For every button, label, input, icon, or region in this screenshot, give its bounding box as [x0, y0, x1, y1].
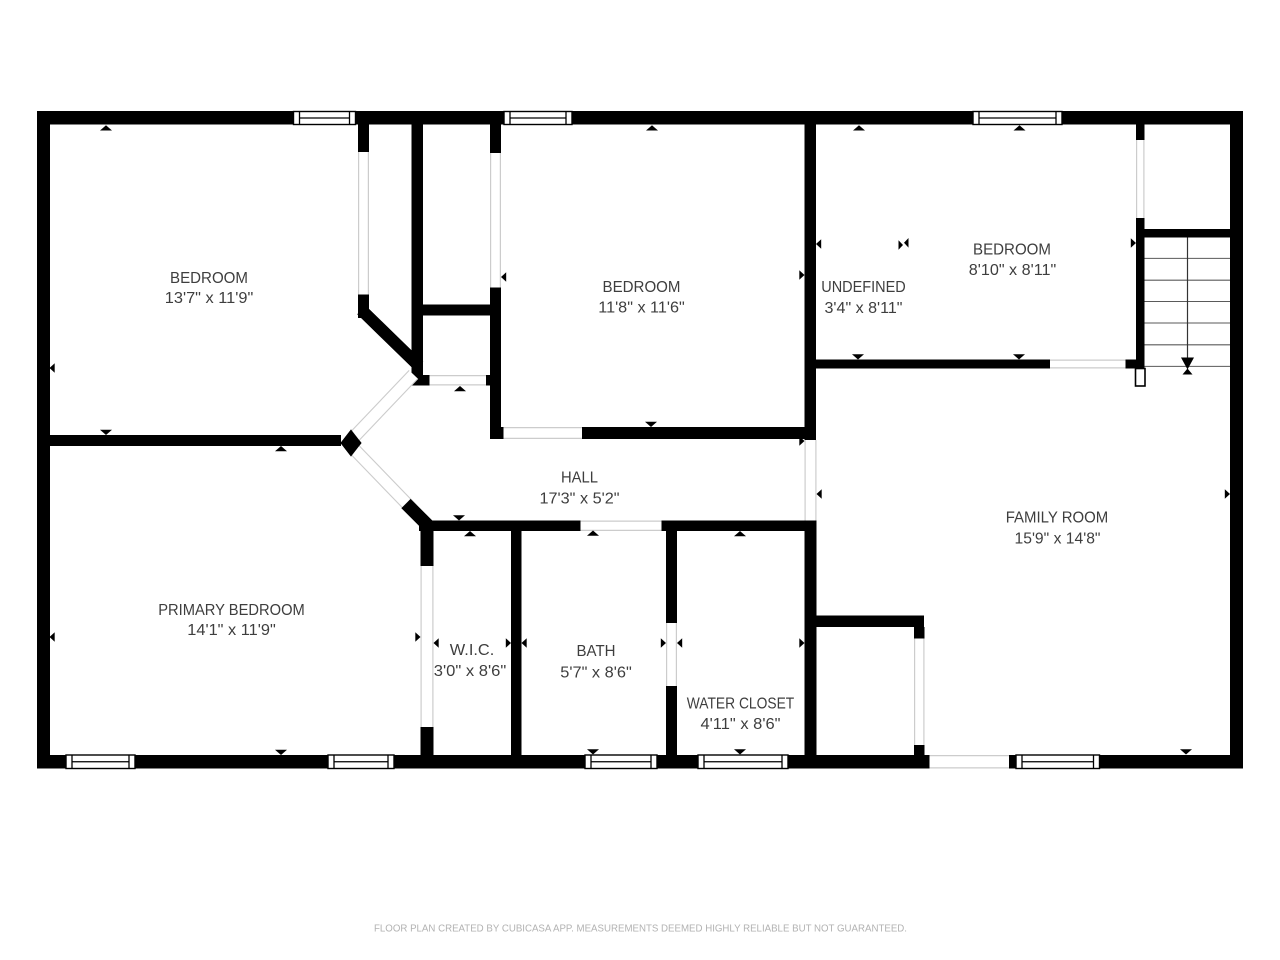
svg-text:5'7" x 8'6": 5'7" x 8'6" — [560, 665, 632, 682]
svg-text:14'1" x 11'9": 14'1" x 11'9" — [187, 622, 276, 639]
svg-text:11'8" x 11'6": 11'8" x 11'6" — [598, 300, 685, 317]
svg-text:3'4" x 8'11": 3'4" x 8'11" — [825, 300, 903, 317]
svg-text:4'11" x 8'6": 4'11" x 8'6" — [701, 716, 781, 733]
svg-text:PRIMARY BEDROOM: PRIMARY BEDROOM — [158, 602, 305, 619]
svg-text:FLOOR PLAN CREATED BY CUBICASA: FLOOR PLAN CREATED BY CUBICASA APP. MEAS… — [374, 924, 907, 935]
svg-text:BEDROOM: BEDROOM — [973, 242, 1051, 259]
svg-text:HALL: HALL — [561, 470, 598, 487]
svg-text:8'10" x 8'11": 8'10" x 8'11" — [969, 262, 1057, 279]
svg-text:W.I.C.: W.I.C. — [450, 642, 495, 659]
svg-text:13'7" x 11'9": 13'7" x 11'9" — [165, 290, 254, 307]
svg-text:3'0" x 8'6": 3'0" x 8'6" — [434, 663, 507, 680]
svg-text:UNDEFINED: UNDEFINED — [821, 279, 906, 296]
svg-text:BEDROOM: BEDROOM — [170, 270, 248, 287]
svg-text:FAMILY ROOM: FAMILY ROOM — [1006, 510, 1109, 527]
svg-text:BATH: BATH — [577, 643, 616, 660]
svg-text:BEDROOM: BEDROOM — [603, 279, 681, 296]
svg-text:15'9" x 14'8": 15'9" x 14'8" — [1015, 531, 1101, 548]
svg-text:17'3" x 5'2": 17'3" x 5'2" — [540, 491, 620, 508]
svg-text:WATER CLOSET: WATER CLOSET — [687, 696, 795, 713]
